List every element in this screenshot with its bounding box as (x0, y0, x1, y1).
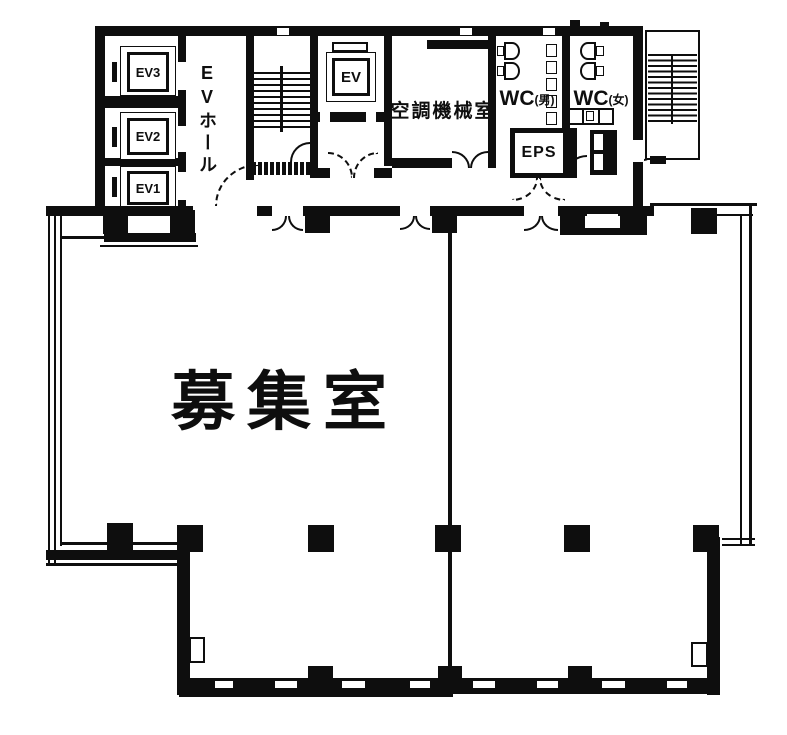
eps-door-arc (539, 178, 565, 201)
eps-door-arc (512, 178, 538, 201)
ev-hall-right-wall (246, 36, 254, 180)
pillar (691, 208, 717, 234)
door-opening (524, 206, 558, 216)
toilet-bowl-icon (580, 62, 596, 80)
floor-plan: EV3 EV2 EV1 EVホール EV 空調機械室 WC(男) (0, 0, 787, 735)
pillar (560, 206, 585, 235)
wall-niche (189, 637, 205, 663)
lower-left-wall (177, 552, 190, 695)
ev-hall-label: EVホール (192, 50, 222, 190)
alcove-sill-line (100, 245, 198, 247)
external-stair-stub (650, 156, 666, 164)
ev3-door-bracket (112, 62, 117, 82)
column (107, 523, 133, 551)
ev1-label: EV1 (127, 171, 169, 205)
alcove-base (104, 233, 196, 242)
alcove-recess (130, 216, 168, 232)
machine-room-duct (427, 40, 490, 49)
core-left-wall (95, 26, 105, 210)
window (473, 681, 495, 688)
balcony-top-edge (650, 203, 757, 206)
vestibule-door-arc (353, 152, 378, 178)
machine-room-bottom-wall (392, 158, 452, 168)
lower-right-wall (707, 537, 720, 695)
machine-room-label: 空調機械室 (390, 97, 496, 121)
balcony-top-inner-edge (717, 214, 753, 216)
toilet-tank-icon (497, 46, 504, 56)
stair-right-wall (310, 36, 318, 168)
door-opening (272, 206, 303, 216)
top-wall-window (277, 28, 289, 35)
window (215, 681, 233, 688)
washstand-icon (546, 44, 557, 57)
toilet-bowl-icon (580, 42, 596, 60)
room-door-arc (524, 216, 541, 231)
ev2-label: EV2 (127, 118, 169, 155)
window (342, 681, 365, 688)
top-wall-stub (600, 22, 609, 27)
toilet-tank-icon (497, 66, 504, 76)
sink-basin (586, 111, 594, 121)
vestibule-door-arc (328, 152, 353, 178)
toilet-bowl-icon (504, 62, 520, 80)
balcony-rail-right (740, 214, 742, 544)
window (275, 681, 297, 688)
balcony-rail-corner (722, 544, 755, 546)
ev-door-gap (178, 172, 186, 200)
column (568, 666, 592, 680)
pillar (432, 206, 457, 233)
external-stair-rail (671, 54, 673, 124)
window (410, 681, 430, 688)
balcony-rail-left (48, 206, 50, 566)
service-ev-label: EV (332, 58, 370, 96)
pillar (103, 210, 128, 234)
window (602, 681, 625, 688)
ev3-label: EV3 (127, 52, 169, 92)
wc-men-label: WC(男) (492, 86, 562, 112)
eps-label: EPS (510, 128, 568, 178)
ev1-door-bracket (112, 177, 117, 197)
ev2-door-bracket (112, 127, 117, 147)
slab-band (46, 550, 190, 560)
pillar (305, 206, 330, 233)
ev-counterweight (332, 42, 368, 52)
stair-lower-flight (252, 162, 310, 175)
slab-edge-line (46, 563, 190, 566)
balcony-rail-left (60, 206, 62, 546)
machine-room-door-arc (452, 151, 470, 168)
stair-door-arc (290, 142, 310, 162)
column (177, 525, 203, 552)
top-wall-window (460, 28, 472, 35)
room-door-arc (541, 216, 558, 231)
column (564, 525, 590, 552)
ev-hall-opening (193, 206, 257, 216)
alcove-recess (587, 214, 618, 226)
balcony-rail-corner (722, 538, 755, 540)
wc-women-sub: (女) (609, 91, 629, 108)
service-ev-door-gap (366, 112, 376, 122)
ev-separator-wall (105, 96, 178, 108)
bottom-wall-edge (179, 694, 453, 697)
top-wall-window (543, 28, 555, 35)
column (308, 666, 333, 680)
column (438, 666, 462, 680)
room-door-arc (288, 216, 303, 231)
vestibule-wall (310, 168, 330, 178)
main-room-label: 募集室 (150, 352, 420, 442)
core-right-wall-lower (633, 162, 643, 210)
wc-men-sub: (男) (535, 91, 555, 108)
wc-corridor-slot (594, 154, 603, 170)
room-door-arc (415, 216, 430, 230)
toilet-tank-icon (596, 46, 604, 56)
column (308, 525, 334, 552)
window (667, 681, 687, 688)
window-sill-line (62, 236, 104, 239)
stair-center-rail (280, 66, 283, 132)
wc-corridor-slot (594, 134, 603, 150)
wall-niche (691, 642, 708, 667)
service-ev-door-gap (320, 112, 330, 122)
washstand-icon (546, 61, 557, 74)
balcony-rail-right (749, 205, 752, 546)
ev-door-gap (178, 62, 186, 90)
machine-room-door-arc (470, 151, 488, 168)
alcove-base (584, 228, 621, 235)
wc-men-main: WC (500, 87, 535, 111)
sink-divider (598, 110, 600, 123)
bottom-wall (177, 678, 720, 694)
pillar (620, 206, 647, 235)
toilet-bowl-icon (504, 42, 520, 60)
tenant-divider-wall (448, 233, 452, 680)
washstand-icon (546, 112, 557, 125)
core-right-wall-upper (633, 26, 643, 140)
door-opening (400, 206, 430, 216)
top-wall-stub (570, 20, 580, 27)
pillar (170, 210, 195, 234)
toilet-tank-icon (596, 66, 604, 76)
balcony-rail-left (54, 206, 56, 566)
ev-door-gap (178, 126, 186, 152)
room-door-arc (400, 216, 415, 230)
sink-divider (582, 110, 584, 123)
core-top-wall (95, 26, 643, 36)
room-door-arc (272, 216, 287, 231)
window (537, 681, 558, 688)
